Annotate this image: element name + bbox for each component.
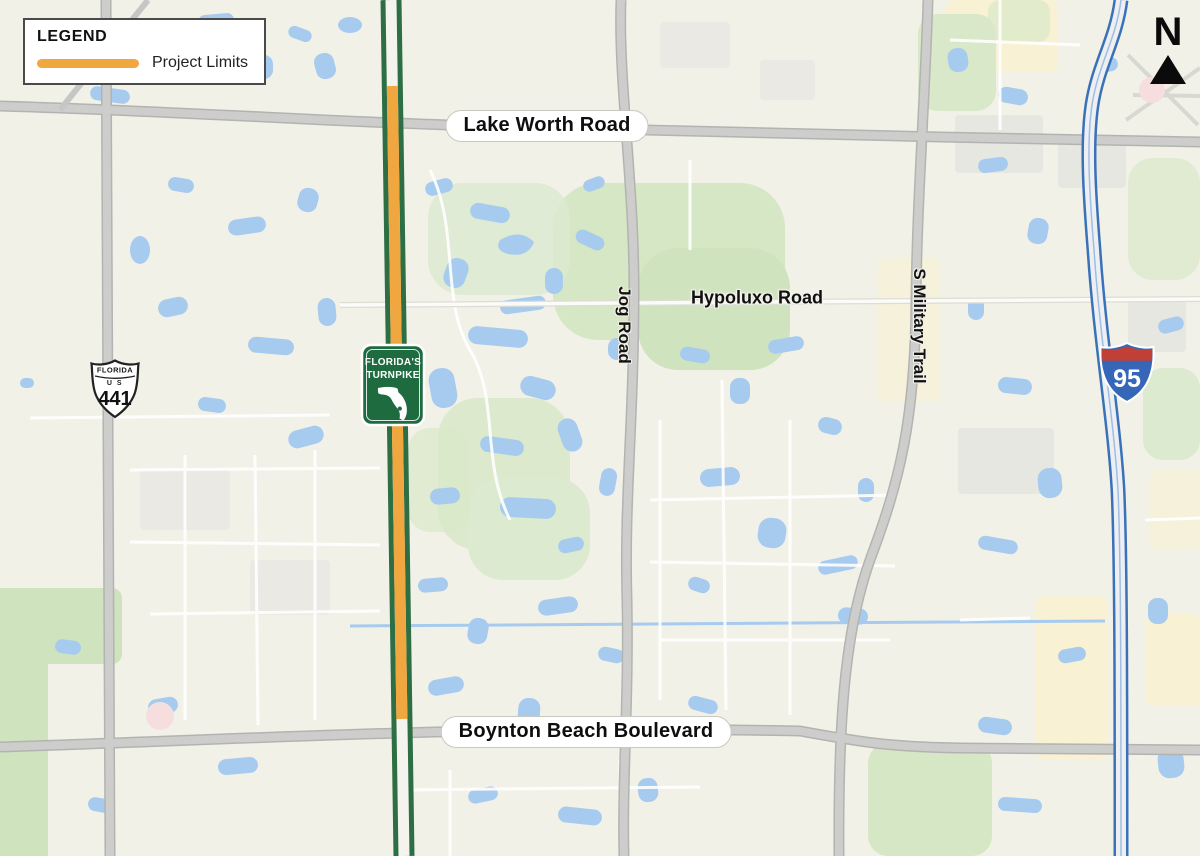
north-label: N: [1144, 12, 1192, 52]
legend: LEGEND Project Limits: [23, 18, 266, 85]
legend-title: LEGEND: [37, 28, 252, 46]
turnpike-shield-line2: TURNPIKE: [366, 370, 420, 381]
label-s-military-trail: S Military Trail: [909, 268, 929, 383]
label-lake-worth-road: Lake Worth Road: [445, 110, 648, 142]
us-441-shield-icon: FLORIDA U S 441: [89, 359, 141, 419]
label-hypoluxo-road: Hypoluxo Road: [691, 288, 823, 309]
project-limits-map-page: LEGEND Project Limits N Lake Worth Road …: [0, 0, 1200, 856]
label-boynton-beach-blvd: Boynton Beach Boulevard: [441, 716, 732, 748]
legend-item-label: Project Limits: [152, 54, 248, 72]
i95-shield-icon: 95: [1099, 342, 1155, 403]
legend-row: Project Limits: [37, 54, 252, 72]
us441-us-label: U S: [107, 380, 123, 387]
north-arrow: N: [1144, 12, 1192, 84]
north-arrow-icon: [1150, 55, 1186, 84]
us441-state-label: FLORIDA: [97, 366, 133, 375]
us441-number: 441: [98, 388, 131, 410]
turnpike-shield-icon: FLORIDA'S TURNPIKE: [360, 343, 426, 427]
turnpike-shield-line1: FLORIDA'S: [365, 357, 421, 368]
label-jog-road: Jog Road: [614, 286, 634, 363]
turnpike-highway: [391, 0, 404, 856]
project-limits-swatch: [37, 59, 139, 68]
i95-number: 95: [1113, 365, 1141, 393]
